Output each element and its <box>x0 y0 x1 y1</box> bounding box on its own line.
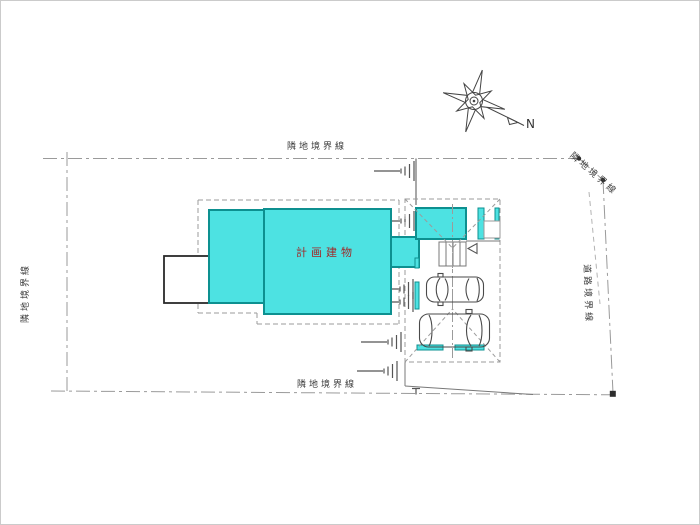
compass-rose-icon <box>443 70 524 132</box>
building-main-wing <box>264 209 391 314</box>
ground-symbol-icon <box>361 332 401 352</box>
ground-symbol-icon <box>374 161 414 181</box>
boundary-label-right: 道路境界線 <box>581 264 593 324</box>
planned-building <box>209 208 499 350</box>
site-plan-drawing <box>1 1 700 525</box>
wall-segment <box>415 282 419 309</box>
porch-notch <box>484 221 500 238</box>
north-arrowhead-icon <box>508 118 519 125</box>
north-label: N <box>526 117 535 131</box>
building-label: 計画建物 <box>296 244 356 260</box>
boundary-corner-marker <box>610 391 616 397</box>
building-left-wing <box>209 210 264 303</box>
boundary-label-top: 隣地境界線 <box>287 142 347 152</box>
ground-symbol-icon <box>357 361 397 381</box>
entrance-arrow-icon <box>468 244 477 254</box>
wall-segment <box>415 258 419 268</box>
wall-segment <box>478 208 484 239</box>
building-entrance-block <box>416 208 466 239</box>
boundary-label-bottom: 隣地境界線 <box>297 380 357 390</box>
car-top-icon <box>427 274 484 306</box>
site-plan: 隣地境界線 隣地境界線 隣地境界線 隣地境界線 道路境界線 計画建物 N <box>0 0 700 525</box>
exterior-structure <box>164 256 209 303</box>
boundary-label-left: 隣地境界線 <box>21 263 31 323</box>
